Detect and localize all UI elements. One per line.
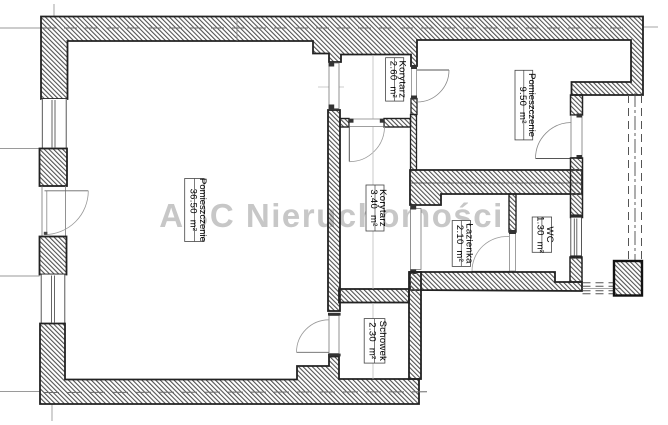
svg-text:9.50 m²: 9.50 m² bbox=[517, 86, 528, 123]
svg-text:1.30 m²: 1.30 m² bbox=[534, 216, 545, 253]
svg-text:2.30 m²: 2.30 m² bbox=[367, 322, 378, 359]
svg-text:36.50 m²: 36.50 m² bbox=[187, 189, 198, 232]
svg-text:2.10 m²: 2.10 m² bbox=[454, 225, 465, 262]
svg-text:3.40 m²: 3.40 m² bbox=[368, 189, 379, 226]
svg-text:2.60 m²: 2.60 m² bbox=[388, 61, 399, 98]
